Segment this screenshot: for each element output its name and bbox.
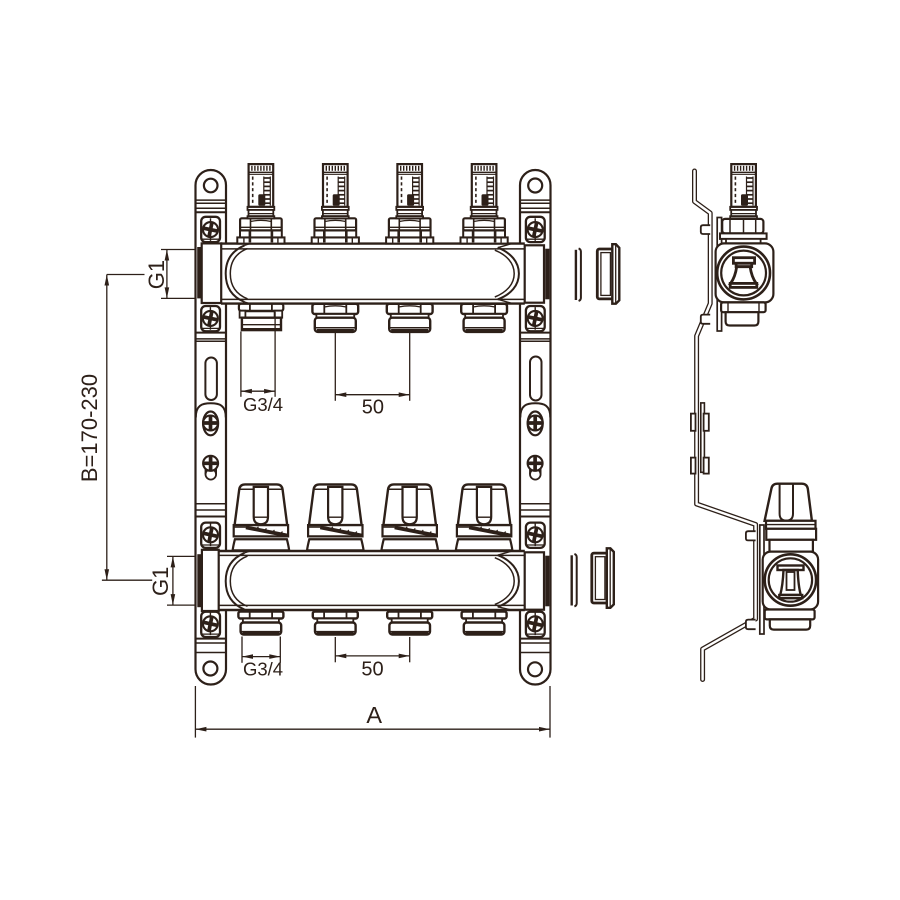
svg-text:50: 50 xyxy=(361,658,383,680)
svg-text:50: 50 xyxy=(362,396,384,418)
svg-text:G3/4: G3/4 xyxy=(243,394,283,415)
svg-text:B=170-230: B=170-230 xyxy=(77,374,102,482)
svg-text:A: A xyxy=(366,702,382,728)
svg-text:G1: G1 xyxy=(148,567,173,596)
svg-text:G1: G1 xyxy=(144,260,169,289)
svg-text:G3/4: G3/4 xyxy=(243,659,283,680)
